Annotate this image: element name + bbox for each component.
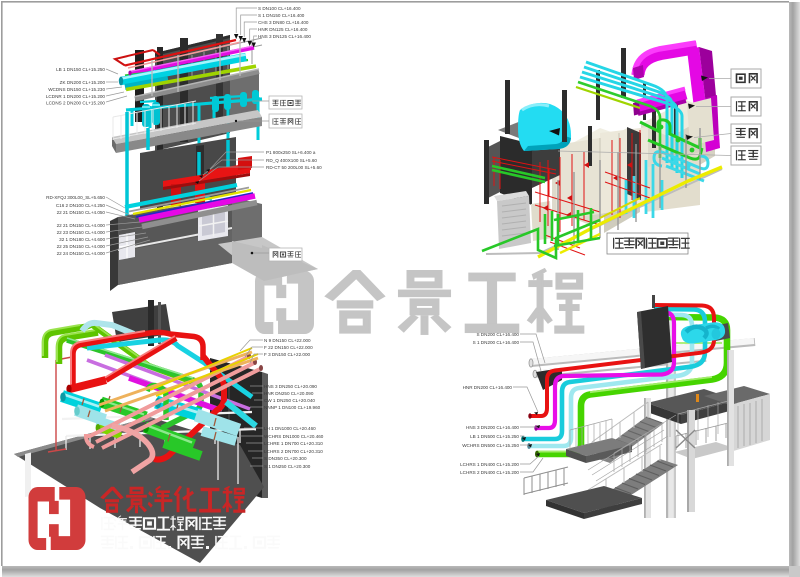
svg-text:HNR DN250 CL+20.090: HNR DN250 CL+20.090 bbox=[264, 391, 314, 396]
svg-text:WCHRS DN500 CL+15.250: WCHRS DN500 CL+15.250 bbox=[462, 443, 519, 448]
svg-text:LB 1 DN150 CL+15.250: LB 1 DN150 CL+15.250 bbox=[56, 67, 105, 72]
svg-text:S 1 DN150 CL+16.400: S 1 DN150 CL+16.400 bbox=[258, 13, 305, 18]
svg-text:22 25 DN150 CL+4.000: 22 25 DN150 CL+4.000 bbox=[57, 244, 106, 249]
svg-text:CHS 3 DN80 CL+16.400: CHS 3 DN80 CL+16.400 bbox=[258, 20, 309, 25]
svg-text:HNS 3 DN200 CL+16.400: HNS 3 DN200 CL+16.400 bbox=[466, 425, 519, 430]
svg-text:LCHRE 1 DN700 CL+20.310: LCHRE 1 DN700 CL+20.310 bbox=[264, 441, 323, 446]
svg-text:22 24 DN150 CL+4.000: 22 24 DN150 CL+4.000 bbox=[57, 251, 106, 256]
svg-text:LCHRS 2 DN700 CL+20.310: LCHRS 2 DN700 CL+20.310 bbox=[264, 449, 323, 454]
svg-text:S DN350 CL+20.300: S DN350 CL+20.300 bbox=[264, 456, 307, 461]
svg-text:P1 800x250 SL+6.400 a: P1 800x250 SL+6.400 a bbox=[266, 150, 316, 155]
svg-text:HNR DN200 CL+16.400: HNR DN200 CL+16.400 bbox=[463, 385, 513, 390]
svg-text:LCDNS 2 DN200 CL+15.200: LCDNS 2 DN200 CL+15.200 bbox=[46, 101, 105, 106]
svg-text:C16 2 DN100 CL+4.250: C16 2 DN100 CL+4.250 bbox=[56, 203, 106, 208]
svg-text:RD-XFQJ 300L00_SL+5.650: RD-XFQJ 300L00_SL+5.650 bbox=[46, 195, 105, 200]
svg-text:LH 1 DN1000 CL+20.460: LH 1 DN1000 CL+20.460 bbox=[264, 426, 316, 431]
svg-text:HNR DN125 CL+16.400: HNR DN125 CL+16.400 bbox=[258, 27, 308, 32]
svg-text:22 21 DN150 CL+4.000: 22 21 DN150 CL+4.000 bbox=[57, 223, 106, 228]
svg-text:F 22 DN150 CL+22.000: F 22 DN150 CL+22.000 bbox=[264, 345, 313, 350]
svg-text:32 1 DN180 CL+4.600: 32 1 DN180 CL+4.600 bbox=[59, 237, 105, 242]
svg-text:F 3 DN150 CL+22.000: F 3 DN150 CL+22.000 bbox=[264, 352, 311, 357]
svg-text:S 1 DN200 CL+16.400: S 1 DN200 CL+16.400 bbox=[473, 340, 520, 345]
svg-text:CW 1 DN250 CL+20.040: CW 1 DN250 CL+20.040 bbox=[264, 398, 315, 403]
svg-text:LCDNR 1 DN200 CL+15.200: LCDNR 1 DN200 CL+15.200 bbox=[46, 94, 106, 99]
svg-text:NNNP 1 DN100 CL+19.960: NNNP 1 DN100 CL+19.960 bbox=[264, 405, 321, 410]
svg-text:RD-CT 50 200L00 SL+5.60: RD-CT 50 200L00 SL+5.60 bbox=[266, 165, 322, 170]
svg-text:HNS 3 DN250 CL+20.090: HNS 3 DN250 CL+20.090 bbox=[264, 384, 317, 389]
svg-text:S 1 DN250 CL+20.300: S 1 DN250 CL+20.300 bbox=[264, 464, 311, 469]
svg-text:22 21 DN150 CL+4.050: 22 21 DN150 CL+4.050 bbox=[57, 210, 106, 215]
svg-text:N 9 DN150 CL+22.000: N 9 DN150 CL+22.000 bbox=[264, 338, 311, 343]
svg-text:LCHRS 2 DN400 CL+15.200: LCHRS 2 DN400 CL+15.200 bbox=[460, 470, 519, 475]
svg-text:22 23 DN150 CL+4.000: 22 23 DN150 CL+4.000 bbox=[57, 230, 106, 235]
svg-text:WCDNS DN150 CL+15.230: WCDNS DN150 CL+15.230 bbox=[48, 87, 105, 92]
svg-text:LCHRS 1 DN400 CL+15.200: LCHRS 1 DN400 CL+15.200 bbox=[460, 462, 519, 467]
svg-text:HNS 3 DN125 CL+16.400: HNS 3 DN125 CL+16.400 bbox=[258, 34, 311, 39]
svg-text:WCHRS DN1000 CL+20.460: WCHRS DN1000 CL+20.460 bbox=[264, 434, 324, 439]
svg-text:LB 1 DN500 CL+15.250: LB 1 DN500 CL+15.250 bbox=[470, 434, 519, 439]
svg-text:S DN100 CL+16.400: S DN100 CL+16.400 bbox=[258, 6, 301, 11]
svg-text:RD_Q 400X100 SL+5.60: RD_Q 400X100 SL+5.60 bbox=[266, 158, 317, 163]
svg-text:S DN200 CL+16.400: S DN200 CL+16.400 bbox=[476, 332, 519, 337]
svg-text:ZK DN200 CL+15.200: ZK DN200 CL+15.200 bbox=[60, 80, 106, 85]
